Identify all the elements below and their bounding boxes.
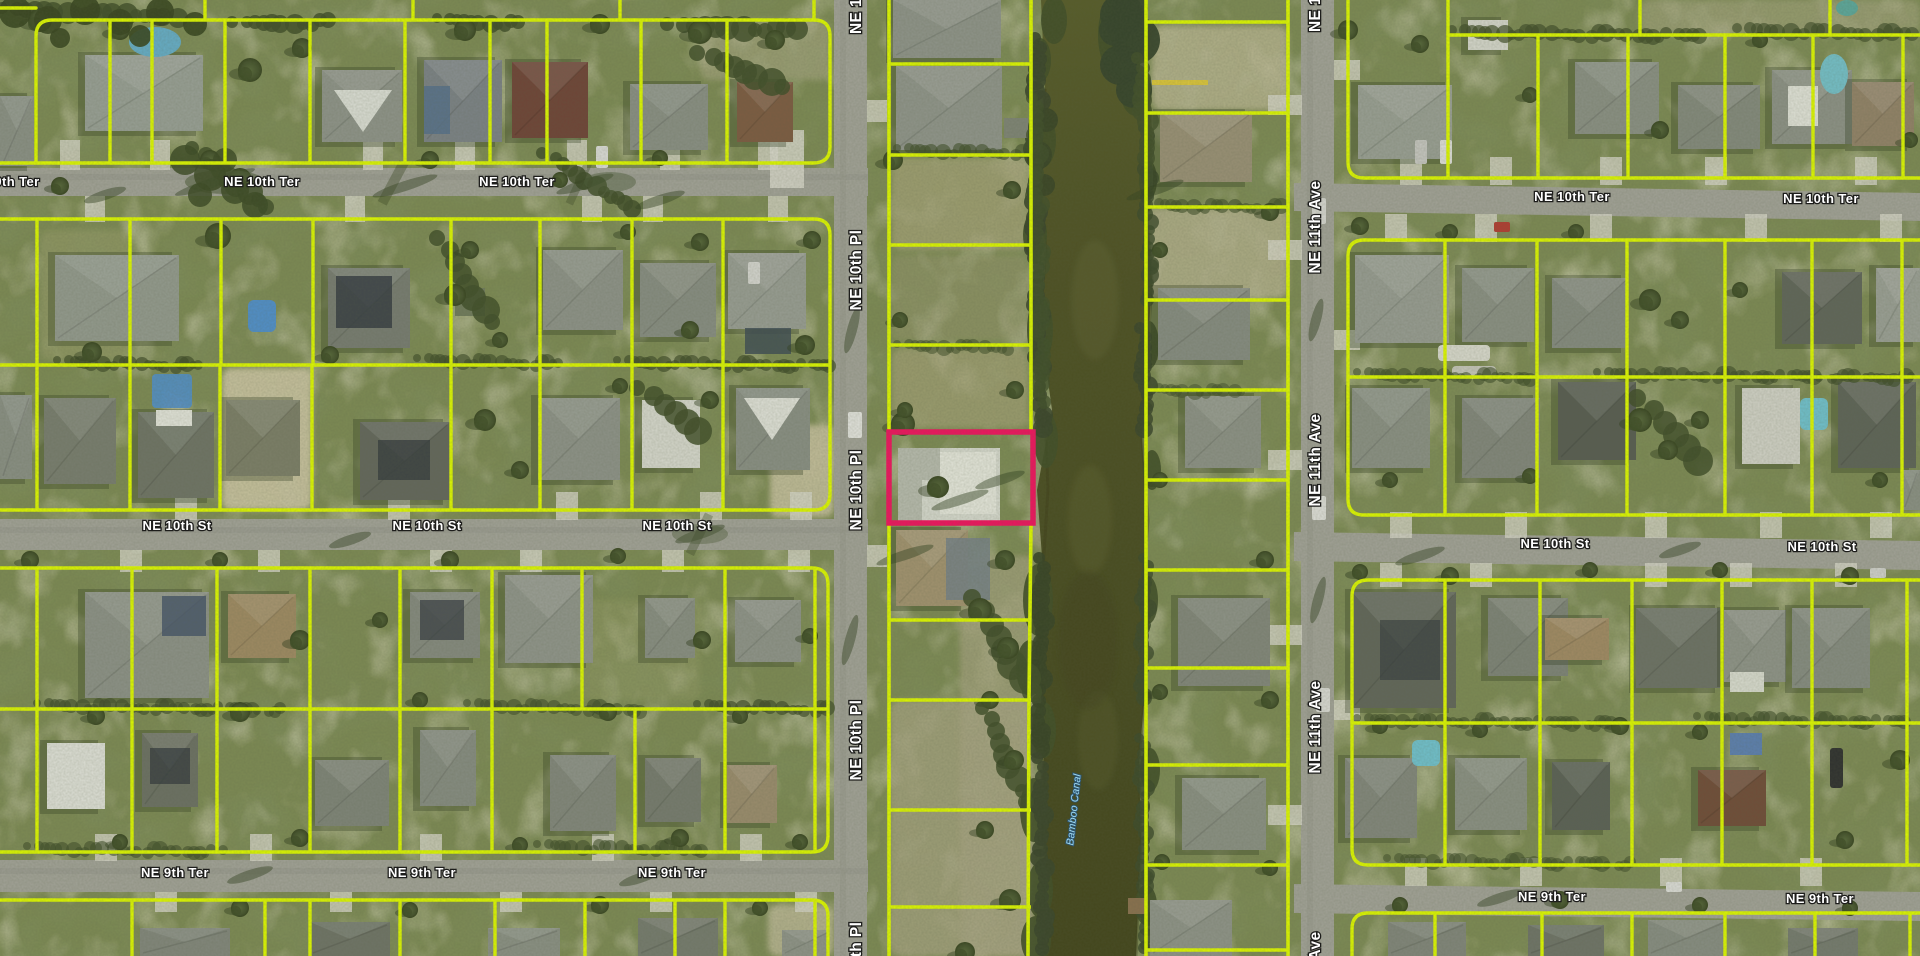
svg-text:NE 10th Ter: NE 10th Ter (1783, 191, 1859, 206)
svg-text:NE 10th Pl: NE 10th Pl (848, 450, 865, 531)
svg-text:0th Ter: 0th Ter (0, 174, 40, 189)
svg-text:NE 1: NE 1 (848, 0, 865, 34)
svg-text:NE 11th Ave: NE 11th Ave (1307, 681, 1324, 774)
svg-text:0th Pl: 0th Pl (848, 922, 865, 956)
svg-text:NE 10th St: NE 10th St (392, 518, 461, 533)
svg-text:NE 9th Ter: NE 9th Ter (1518, 889, 1586, 904)
svg-text:NE 9th Ter: NE 9th Ter (141, 865, 209, 880)
svg-text:NE 9th Ter: NE 9th Ter (388, 865, 456, 880)
svg-text:NE 10th St: NE 10th St (1520, 536, 1589, 551)
svg-text:NE 10th Ter: NE 10th Ter (1534, 189, 1610, 204)
svg-text:Ave: Ave (1307, 931, 1324, 956)
svg-text:NE 10th St: NE 10th St (142, 518, 211, 533)
svg-text:NE 10th St: NE 10th St (642, 518, 711, 533)
svg-text:NE 10th Ter: NE 10th Ter (224, 174, 300, 189)
svg-text:NE 11th Ave: NE 11th Ave (1307, 181, 1324, 274)
svg-text:NE 9th Ter: NE 9th Ter (638, 865, 706, 880)
svg-text:NE 10th Pl: NE 10th Pl (848, 700, 865, 781)
svg-text:NE 10th St: NE 10th St (1787, 539, 1856, 554)
svg-text:NE 1: NE 1 (1307, 0, 1324, 32)
svg-text:NE 11th Ave: NE 11th Ave (1307, 414, 1324, 507)
svg-text:NE 10th Ter: NE 10th Ter (479, 174, 555, 189)
svg-text:NE 10th Pl: NE 10th Pl (848, 230, 865, 311)
svg-text:NE 9th Ter: NE 9th Ter (1786, 891, 1854, 906)
